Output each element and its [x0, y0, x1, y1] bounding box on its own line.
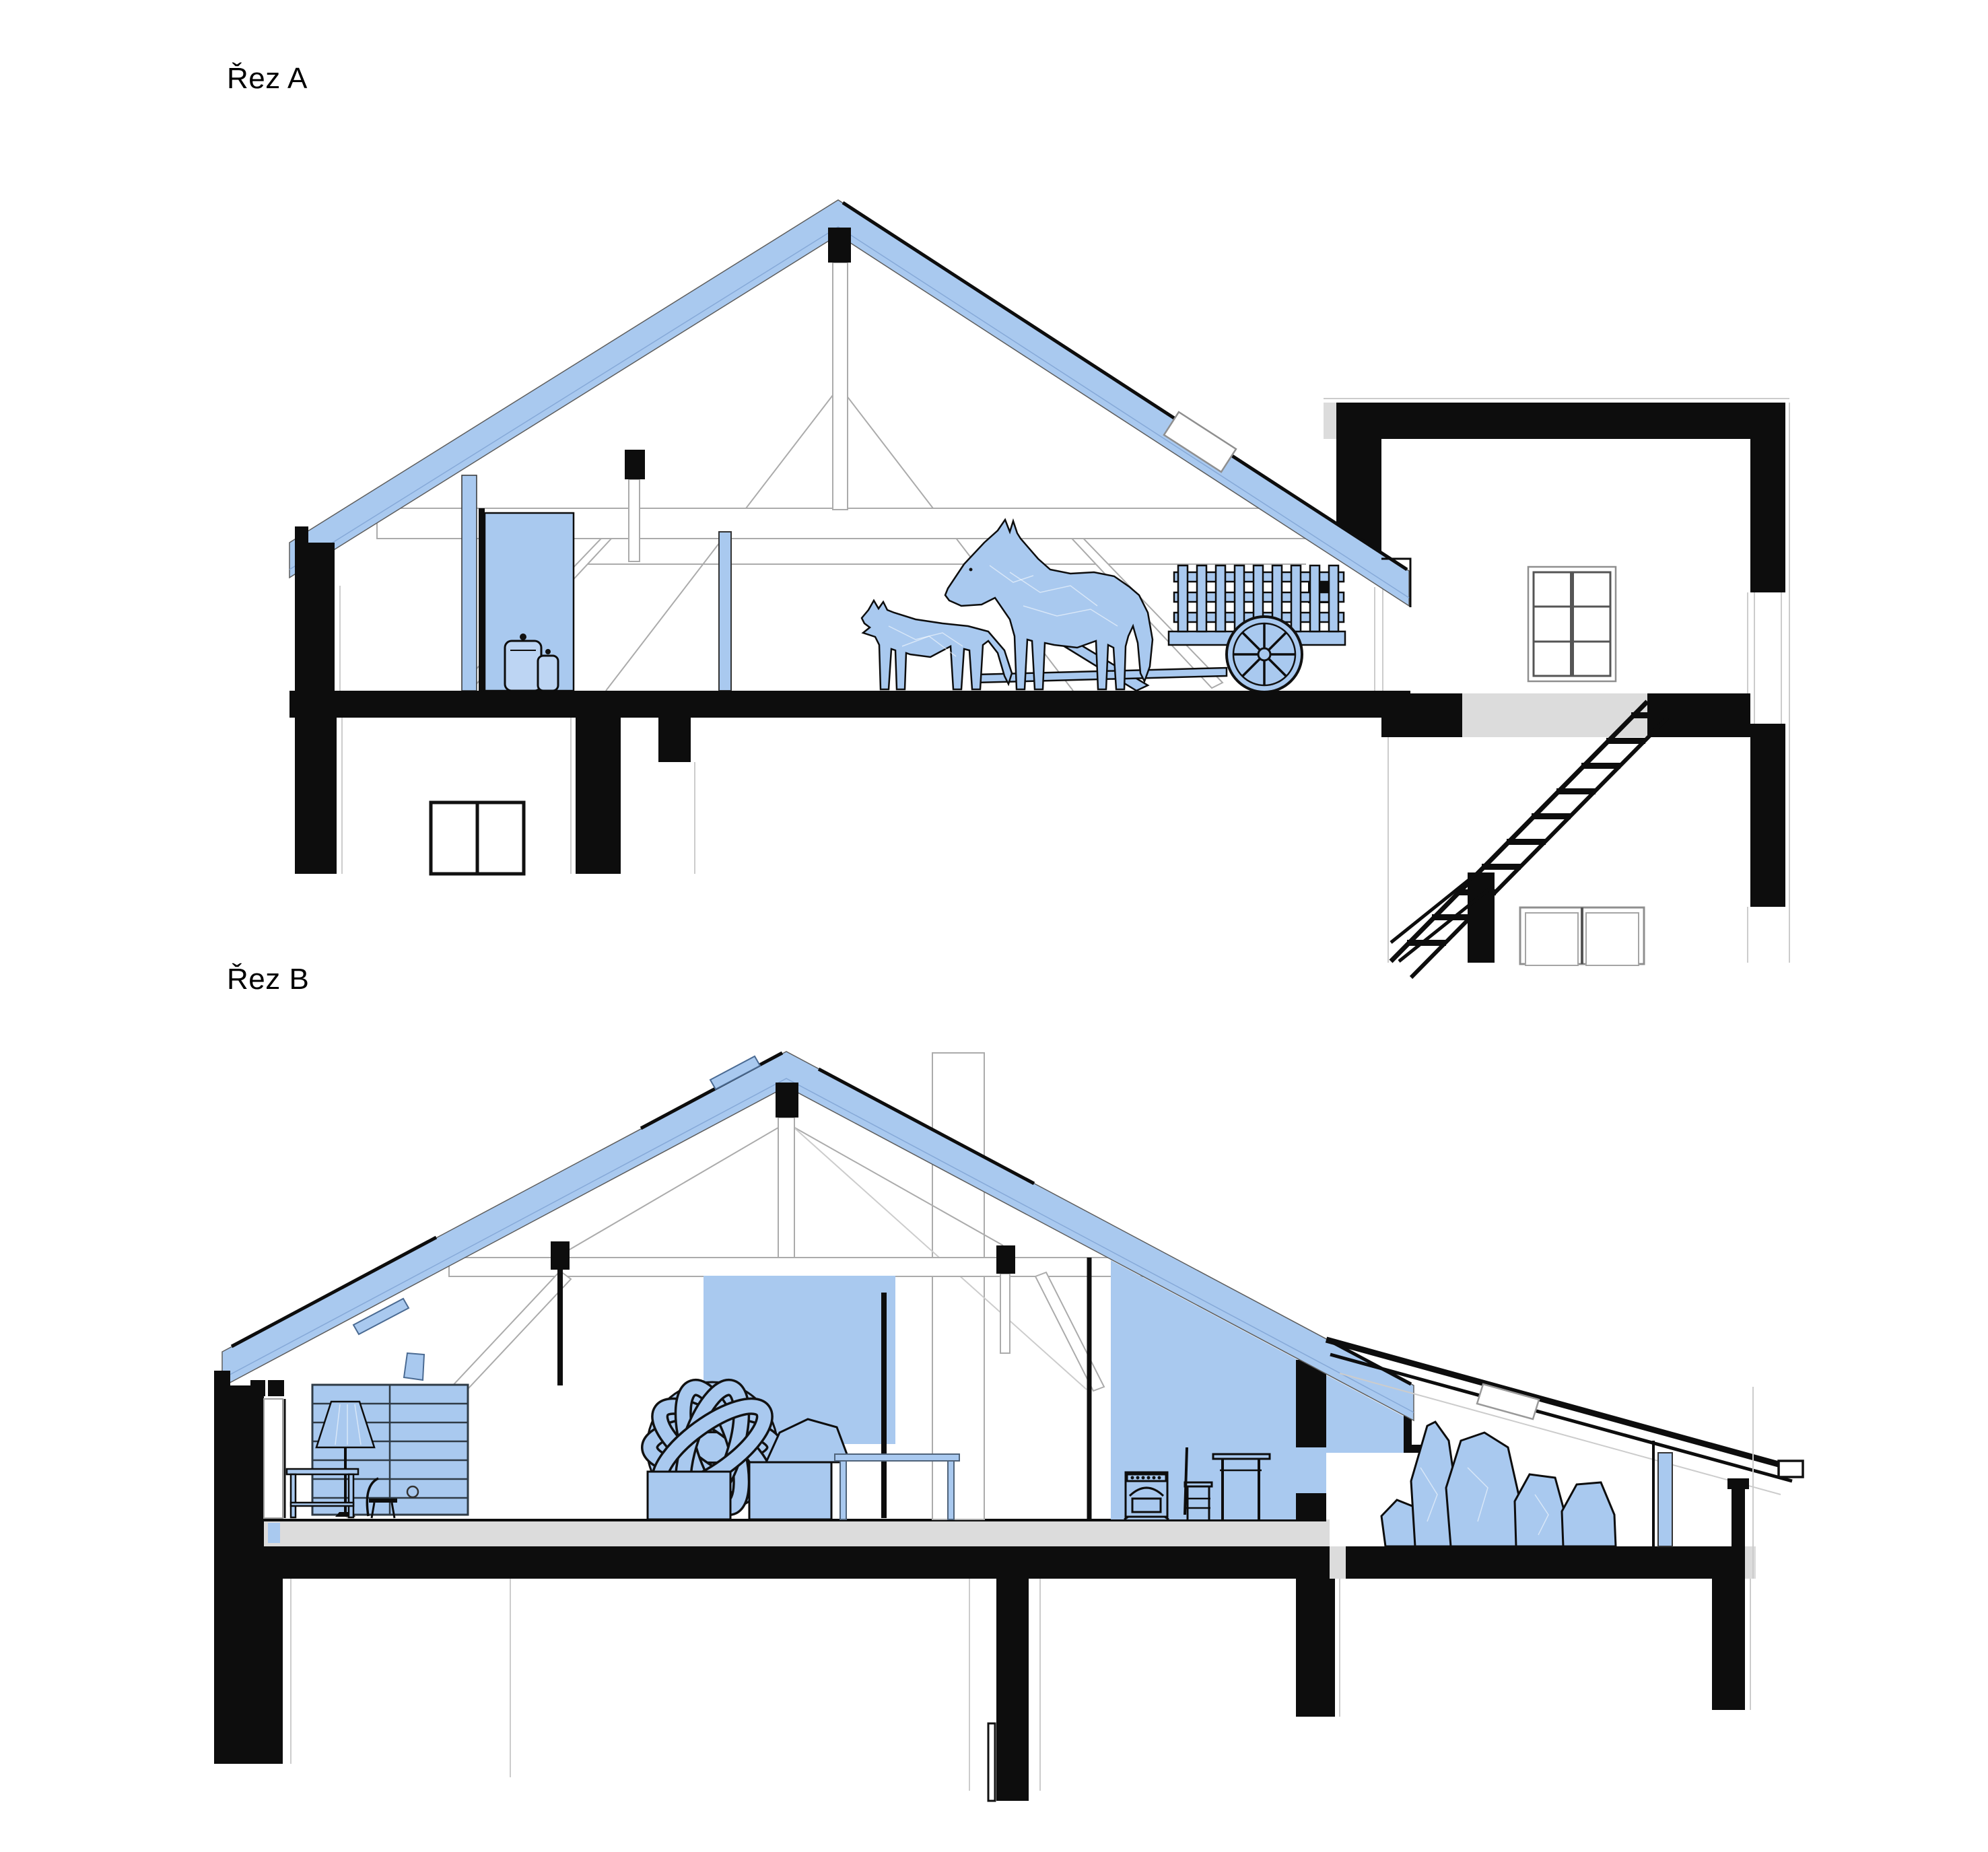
pendant-rod [881, 1293, 887, 1518]
window-reveal [264, 1399, 283, 1518]
post [1732, 1488, 1745, 1546]
king-post [833, 263, 848, 510]
eave-cap [1779, 1461, 1803, 1477]
purlin-left [625, 450, 645, 479]
floor-a [289, 691, 1410, 874]
drawing-sheet: Řez A Řez B [0, 0, 1988, 1852]
wall-strip [719, 532, 731, 691]
wall-lower [1296, 1493, 1326, 1519]
adjoining-building [1324, 399, 1789, 978]
left-wall-a [295, 526, 340, 691]
purlin-apex [776, 1083, 798, 1118]
section-b-drawing [214, 1052, 1803, 1801]
section-a-drawing [289, 200, 1789, 978]
king-post [778, 1118, 794, 1258]
roof-a [289, 200, 1410, 607]
door-lower-right [1520, 907, 1644, 965]
door-edge [988, 1723, 995, 1801]
substructure-b [214, 1579, 1750, 1801]
figures-a [862, 520, 1345, 692]
bracket-patch [404, 1353, 424, 1380]
wall-upper [1296, 1360, 1326, 1447]
column-3 [1712, 1579, 1745, 1710]
lower-wall-left [214, 1579, 283, 1764]
chimney-b [932, 1053, 984, 1519]
purlin-right [996, 1245, 1015, 1274]
lower-wall-mid [576, 718, 621, 874]
sections-drawing [0, 0, 1988, 1852]
purlin-post [557, 1270, 563, 1385]
window-six-pane [1528, 567, 1616, 681]
post-cap [1727, 1478, 1749, 1489]
glass-strip [1658, 1453, 1672, 1546]
hanger-post [1000, 1274, 1010, 1353]
brace-right [1035, 1272, 1104, 1391]
hanger-post [629, 479, 640, 561]
purlin-apex [828, 228, 851, 263]
column-2 [1296, 1579, 1335, 1717]
column-1 [996, 1579, 1029, 1801]
door-lower-left [431, 802, 524, 874]
lower-wall-left [295, 718, 337, 874]
purlin-left [551, 1241, 570, 1270]
boulders [1381, 1422, 1616, 1546]
